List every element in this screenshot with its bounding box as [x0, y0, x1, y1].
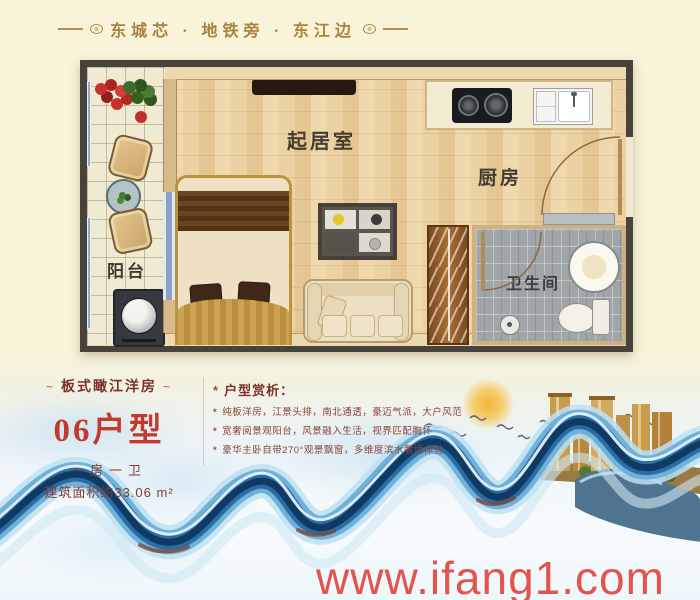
- table-tray: [325, 233, 356, 252]
- kitchen-counter: [425, 80, 613, 130]
- header-title: 东城芯 · 地铁旁 · 东江边: [110, 17, 356, 41]
- tray-item: [333, 214, 344, 225]
- sofa: [303, 279, 413, 343]
- faucet: [573, 95, 575, 107]
- tagline: ~板式瞰江洋房~: [18, 376, 200, 396]
- window: [87, 217, 91, 329]
- sofa-back: [308, 283, 406, 296]
- bathroom-label: 卫生间: [506, 270, 560, 294]
- stove: [452, 88, 512, 123]
- room-balcony: 阳台: [87, 67, 165, 345]
- header-line-left: [58, 28, 83, 30]
- balcony-window: [163, 192, 175, 300]
- washer-drum: [121, 298, 157, 334]
- watermark: www.ifang1.com: [316, 551, 665, 600]
- floorplan: 阳台 起居室: [80, 60, 633, 352]
- bed-blanket: [178, 299, 289, 345]
- unit-name: 06户型: [18, 403, 200, 451]
- washer-panel: [122, 339, 156, 342]
- living-room-label: 起居室: [287, 125, 356, 154]
- table-tray: [359, 233, 390, 252]
- shower-drain: [500, 315, 520, 335]
- info-divider: [203, 378, 204, 466]
- analysis-title-text: 户型赏析：: [224, 383, 294, 398]
- entry-door-opening: [626, 137, 633, 217]
- star-icon: *: [213, 426, 217, 437]
- analysis-bullet: *豪华主卧自带270°观景飘窗，多维度滨水奢境体验: [213, 442, 478, 456]
- unit-layout: 一房一卫: [18, 460, 200, 479]
- star-icon: *: [213, 445, 217, 456]
- ornament-icon: [90, 24, 103, 34]
- analysis-bullet: *宽奢阅景观阳台，风景融入生活，视界匹配胸怀: [213, 423, 478, 437]
- kitchen-sink: [533, 88, 593, 125]
- real-estate-poster: 东城芯 · 地铁旁 · 东江边 阳台: [0, 0, 700, 600]
- star-icon: *: [213, 383, 219, 398]
- sink-basin: [558, 91, 590, 122]
- tray-item: [371, 214, 382, 225]
- header-banner: 东城芯 · 地铁旁 · 东江边: [58, 16, 408, 42]
- tagline-text: 板式瞰江洋房: [61, 378, 157, 394]
- bathroom-lintel: [543, 213, 615, 225]
- toilet-tank: [592, 299, 610, 335]
- sofa-cushions: [322, 315, 403, 337]
- kitchen-label: 厨房: [478, 163, 522, 190]
- bullet-text: 豪华主卧自带270°观景飘窗，多维度滨水奢境体验: [222, 445, 444, 456]
- coffee-table: [318, 203, 397, 260]
- bed: [175, 175, 292, 345]
- star-icon: *: [213, 407, 217, 418]
- toilet: [558, 303, 596, 333]
- unit-area: 建筑面积约33.06 m²: [18, 482, 200, 501]
- ornament-icon: [363, 24, 376, 34]
- analysis-title: *户型赏析：: [213, 380, 478, 399]
- bullet-text: 纯板洋房，江景头排，南北通透，豪迈气派，大户风范: [222, 407, 462, 418]
- unit-analysis: *户型赏析： *纯板洋房，江景头排，南北通透，豪迈气派，大户风范 *宽奢阅景观阳…: [213, 380, 478, 456]
- bathroom-basin: [568, 241, 620, 293]
- burner: [458, 95, 479, 116]
- burner: [484, 93, 508, 117]
- analysis-bullet: *纯板洋房，江景头排，南北通透，豪迈气派，大户风范: [213, 404, 478, 418]
- balcony-chair: [106, 133, 154, 183]
- tv-console: [252, 80, 356, 95]
- bullet-text: 宽奢阅景观阳台，风景融入生活，视界匹配胸怀: [222, 426, 432, 437]
- sink-drainer: [536, 91, 556, 122]
- unit-summary: ~板式瞰江洋房~ 06户型 一房一卫 建筑面积约33.06 m²: [18, 376, 200, 501]
- table-tray: [359, 210, 390, 229]
- window: [87, 81, 91, 167]
- tray-item: [369, 238, 381, 250]
- bed-headboard: [178, 191, 289, 231]
- flower-pot: [95, 83, 107, 95]
- wardrobe: [427, 225, 469, 345]
- tagline-deco-left: ~: [40, 380, 61, 394]
- header-line-right: [383, 28, 408, 30]
- plant: [119, 192, 126, 199]
- table-tray: [325, 210, 356, 229]
- plant-pot: [123, 81, 136, 94]
- balcony-chair: [107, 206, 154, 255]
- balcony-label: 阳台: [107, 257, 147, 282]
- tagline-deco-right: ~: [157, 380, 178, 394]
- floorplan-floor: 阳台 起居室: [87, 67, 626, 345]
- washing-machine: [113, 289, 165, 347]
